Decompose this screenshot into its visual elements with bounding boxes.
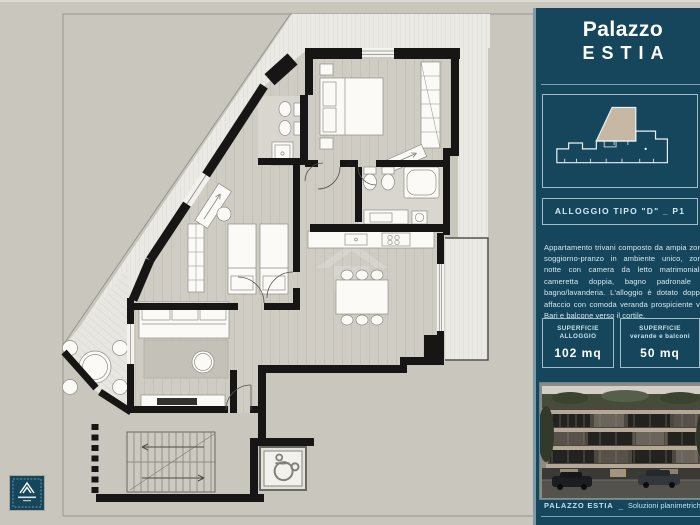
wardrobe-column (188, 224, 204, 292)
floor-plan (0, 0, 533, 525)
stat-superficie-verande: SUPERFICIE verande e balconi 50 mq (620, 318, 700, 368)
stat-value: 50 mq (621, 346, 699, 360)
builder-logo (10, 476, 44, 510)
side-table (192, 351, 214, 373)
building-rendering-image (540, 383, 700, 499)
staircase-icon (127, 432, 215, 492)
single-bed (260, 224, 288, 294)
bidet (382, 167, 395, 190)
wardrobe (421, 62, 440, 148)
toilet (364, 167, 377, 190)
building-rendering (540, 383, 700, 499)
rug (144, 340, 228, 378)
info-panel: Palazzo ESTIA ALLOGGIO TIPO "D" _ P1 App… (533, 8, 700, 525)
stat-label: SUPERFICIE (621, 325, 699, 333)
desk-chair (217, 207, 231, 221)
stat-label: SUPERFICIE (543, 325, 613, 333)
stat-value: 102 mq (543, 346, 613, 360)
surface-stats: SUPERFICIE ALLOGGIO 102 mq SUPERFICIE ve… (542, 318, 700, 368)
stat-superficie-alloggio: SUPERFICIE ALLOGGIO 102 mq (542, 318, 614, 368)
title-line1: Palazzo (536, 18, 700, 42)
balcony (440, 238, 488, 360)
bathtub (404, 167, 439, 198)
apartment-description: Appartamento trivani composto da ampia z… (544, 242, 700, 322)
building-position-diagram (543, 95, 697, 187)
dining-table (336, 270, 388, 325)
single-bed (228, 224, 256, 294)
stat-label: verande e balconi (621, 333, 699, 341)
title-line2: ESTIA (536, 42, 700, 64)
footer-divider (541, 516, 700, 517)
kitchen-counter (308, 231, 434, 248)
floorplan-brochure: { "panel": { "title": { "line1": "Palazz… (0, 0, 700, 525)
unit-type-label: ALLOGGIO TIPO "D" _ P1 (555, 206, 685, 216)
title-divider (541, 84, 700, 85)
panel-footer: PALAZZO ESTIA _ Soluzioni planimetriche (536, 501, 700, 510)
washbasin (364, 210, 408, 224)
right-veranda-floor (458, 48, 488, 238)
footer-separator: _ (619, 501, 623, 510)
stat-label: ALLOGGIO (543, 333, 613, 341)
page-title: Palazzo ESTIA (536, 18, 700, 64)
elevator (260, 447, 306, 490)
footer-text: Soluzioni planimetriche (628, 501, 700, 510)
washing-machine (412, 211, 427, 224)
builder-logo-mark (10, 476, 44, 510)
footer-brand: PALAZZO ESTIA (544, 501, 613, 510)
unit-type-box: ALLOGGIO TIPO "D" _ P1 (542, 198, 698, 225)
building-position-box (542, 94, 698, 188)
